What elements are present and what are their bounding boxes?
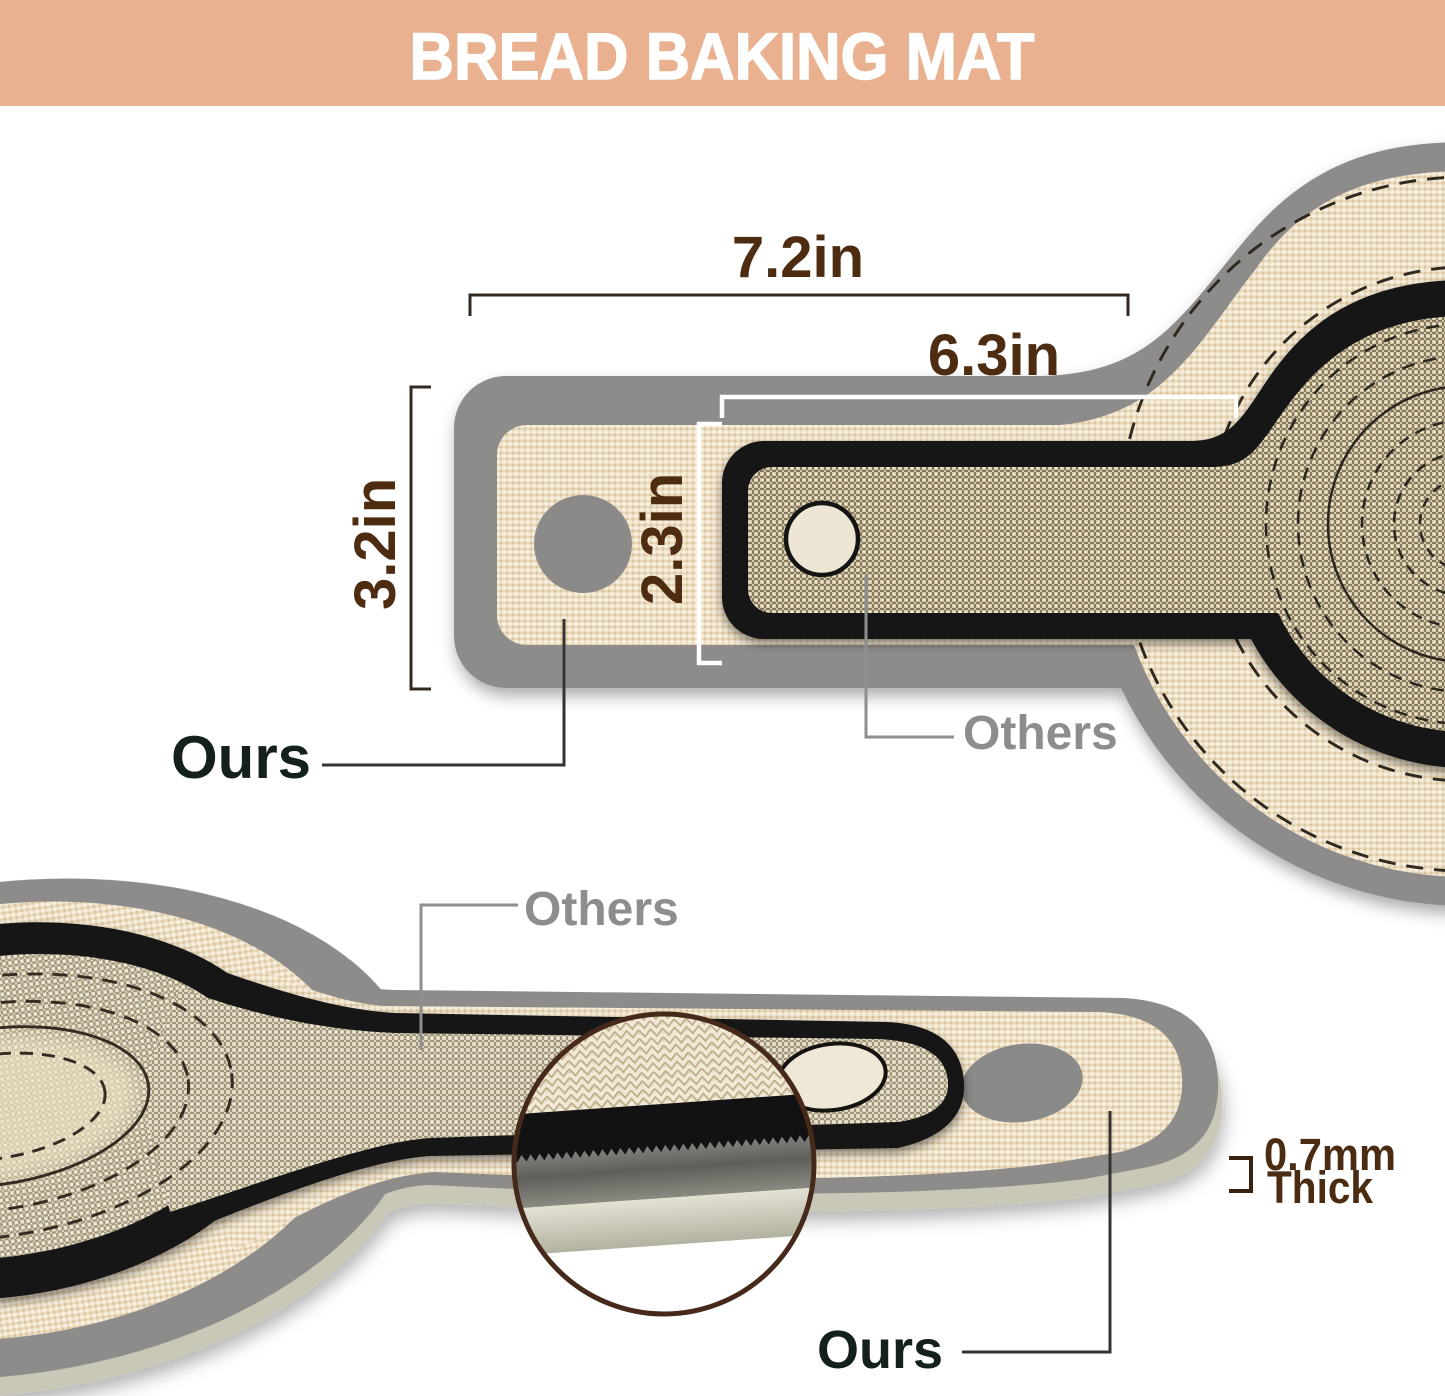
svg-text:Ours: Ours: [817, 1320, 943, 1380]
svg-text:BREAD BAKING MAT: BREAD BAKING MAT: [410, 19, 1035, 93]
svg-text:7.2in: 7.2in: [732, 225, 864, 290]
svg-text:3.2in: 3.2in: [343, 478, 408, 610]
svg-text:Thick: Thick: [1267, 1162, 1374, 1213]
svg-text:Others: Others: [963, 707, 1118, 760]
svg-text:2.3in: 2.3in: [630, 473, 695, 605]
svg-text:Ours: Ours: [171, 724, 311, 791]
svg-text:Others: Others: [524, 883, 679, 936]
svg-text:6.3in: 6.3in: [928, 323, 1060, 388]
